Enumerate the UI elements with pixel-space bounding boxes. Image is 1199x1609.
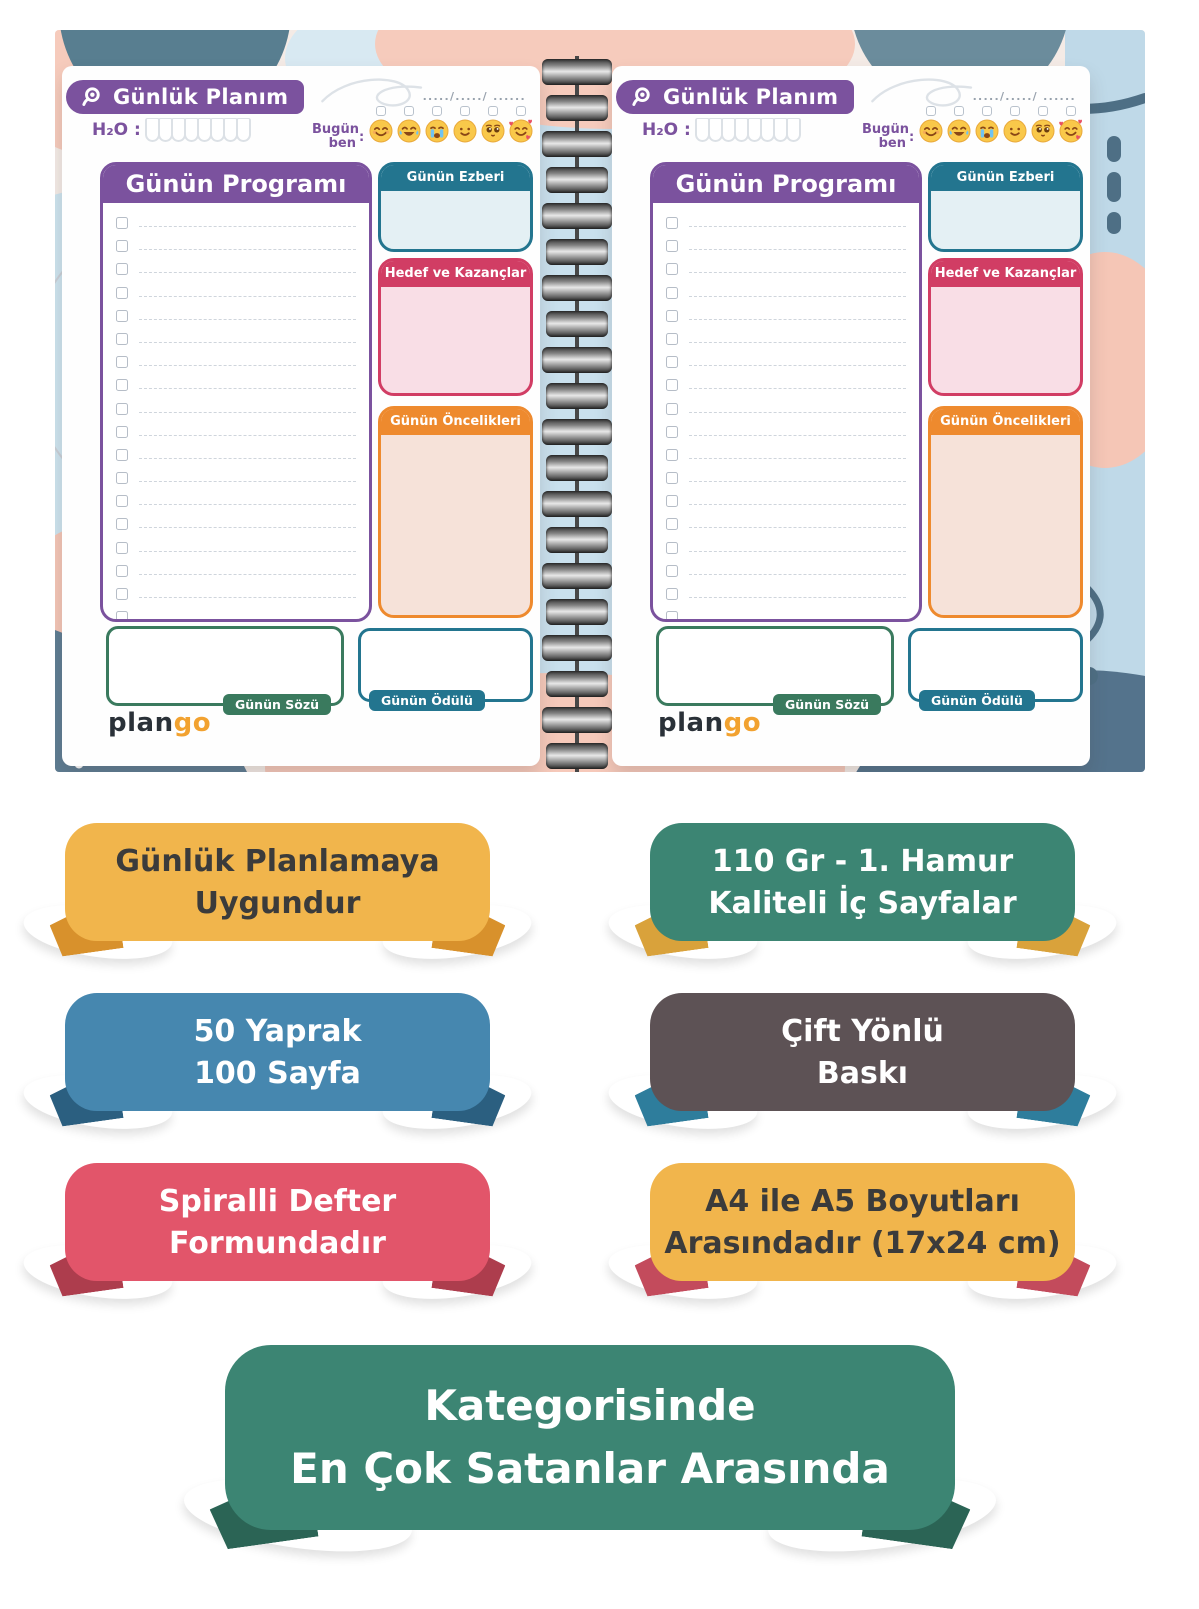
mood-checkbox: [1038, 106, 1048, 116]
quote-tag: Günün Sözü: [223, 694, 331, 715]
spiral-coil: [546, 95, 608, 121]
spiral-coil: [542, 59, 612, 85]
feature-badge-bestseller: KategorisindeEn Çok Satanlar Arasında: [225, 1345, 955, 1530]
checklist-row: [116, 468, 359, 491]
checklist-row: [666, 306, 909, 329]
checklist: [653, 203, 919, 622]
reward-tag: Günün Ödülü: [919, 690, 1035, 711]
feature-badge-daily-planning: Günlük PlanlamayaUygundur: [65, 823, 490, 941]
checklist-row: [666, 399, 909, 422]
page-title-banner: Günlük Planım: [66, 80, 304, 114]
mood-checkbox: [1010, 106, 1020, 116]
emoji-pleading-face-icon: [481, 119, 505, 143]
mood-tracker-label: Bugünben: [312, 123, 356, 150]
emoji-smiling-face-icon: [919, 119, 943, 143]
water-cup-icon: [786, 118, 801, 142]
spiral-coil: [546, 455, 608, 481]
checklist-row: [666, 213, 909, 236]
badge-text-line: Günlük Planlamaya: [115, 842, 439, 881]
reward-tag: Günün Ödülü: [369, 690, 485, 711]
mood-checkbox: [982, 106, 992, 116]
notebook-photo: Günlük Planım ...../...../ ...... H₂O : …: [55, 30, 1145, 772]
page-title: Günlük Planım: [113, 85, 288, 109]
water-tracker-label: H₂O :: [642, 120, 691, 140]
badge-text-line: 50 Yaprak: [194, 1012, 362, 1051]
checklist-row: [666, 491, 909, 514]
checklist-row: [116, 375, 359, 398]
badge-text-line: Kaliteli İç Sayfalar: [708, 884, 1016, 923]
spiral-coil: [542, 347, 612, 373]
mood-option: [974, 106, 1000, 143]
emoji-tears-of-joy-icon: [947, 119, 971, 143]
date-field: ...../...../ ......: [423, 90, 526, 103]
section-header: Günün Öncelikleri: [381, 409, 530, 435]
checklist-row: [666, 329, 909, 352]
emoji-slight-smile-icon: [1003, 119, 1027, 143]
checklist-row: [116, 352, 359, 375]
checklist-row: [116, 236, 359, 259]
mood-option: [946, 106, 972, 143]
checklist-row: [666, 584, 909, 607]
product-image: Günlük Planım ...../...../ ...... H₂O : …: [0, 0, 1199, 1609]
badge-text-line: Çift Yönlü: [781, 1012, 944, 1051]
plango-mark-icon: [80, 86, 102, 108]
water-tracker: H₂O :: [642, 118, 801, 142]
badge-text-line: Baskı: [817, 1054, 908, 1093]
spiral-coil: [546, 743, 608, 769]
mood-option: [918, 106, 944, 143]
section-memorization: Günün Ezberi: [928, 162, 1083, 252]
brand-logo: plango: [108, 708, 211, 738]
mood-option: [480, 106, 506, 143]
checklist-row: [666, 422, 909, 445]
checklist-row: [666, 375, 909, 398]
feature-badge-double-sided: Çift YönlüBaskı: [650, 993, 1075, 1111]
mood-checkbox: [1066, 106, 1076, 116]
section-memorization: Günün Ezberi: [378, 162, 533, 252]
section-header: Günün Ezberi: [381, 165, 530, 191]
checklist-row: [666, 607, 909, 622]
section-goals: Hedef ve Kazançlar: [928, 258, 1083, 396]
mood-checkbox: [432, 106, 442, 116]
emoji-crying-face-icon: [425, 119, 449, 143]
mood-tracker: Bugünben :: [862, 106, 1080, 152]
quote-box: Günün Sözü: [106, 626, 344, 706]
checklist-row: [116, 445, 359, 468]
mood-checkbox: [376, 106, 386, 116]
checklist-row: [116, 607, 359, 622]
checklist-row: [666, 259, 909, 282]
spiral-coil: [546, 383, 608, 409]
badge-text-line: 110 Gr - 1. Hamur: [712, 842, 1013, 881]
badge-text-line: A4 ile A5 Boyutları: [705, 1182, 1020, 1221]
mood-option: [1002, 106, 1028, 143]
mood-option: [508, 106, 534, 143]
checklist-row: [666, 538, 909, 561]
feature-badge-spiral-form: Spiralli DefterFormundadır: [65, 1163, 490, 1281]
mood-option: [1030, 106, 1056, 143]
section-header: Hedef ve Kazançlar: [931, 261, 1080, 287]
planner-page-right: Günlük Planım ...../...../ ...... H₂O : …: [612, 66, 1090, 766]
spiral-coil: [546, 527, 608, 553]
mood-tracker: Bugünben :: [312, 106, 530, 152]
mood-tracker-label: Bugünben: [862, 123, 906, 150]
emoji-pleading-face-icon: [1031, 119, 1055, 143]
checklist-row: [116, 491, 359, 514]
badge-text-line: Formundadır: [169, 1224, 386, 1263]
emoji-tears-of-joy-icon: [397, 119, 421, 143]
mood-option: [368, 106, 394, 143]
checklist-row: [666, 283, 909, 306]
checklist-row: [666, 514, 909, 537]
spiral-coil: [542, 203, 612, 229]
spiral-coil: [546, 167, 608, 193]
spiral-coil: [546, 671, 608, 697]
mood-checkbox: [404, 106, 414, 116]
badge-text-line: 100 Sayfa: [194, 1054, 361, 1093]
brand-logo: plango: [658, 708, 761, 738]
water-tracker-label: H₂O :: [92, 120, 141, 140]
checklist-row: [116, 259, 359, 282]
mood-checkbox: [926, 106, 936, 116]
quote-box: Günün Sözü: [656, 626, 894, 706]
emoji-hearts-face-icon: [1059, 119, 1083, 143]
spiral-coil: [542, 491, 612, 517]
badge-text-line: Kategorisinde: [424, 1379, 755, 1434]
planner-page-left: Günlük Planım ...../...../ ...... H₂O : …: [62, 66, 540, 766]
reward-box: Günün Ödülü: [908, 628, 1083, 702]
mood-checkbox: [488, 106, 498, 116]
checklist-row: [666, 236, 909, 259]
feature-badge-page-count: 50 Yaprak100 Sayfa: [65, 993, 490, 1111]
mood-option: [424, 106, 450, 143]
mood-checkbox: [954, 106, 964, 116]
reward-box: Günün Ödülü: [358, 628, 533, 702]
page-title-banner: Günlük Planım: [616, 80, 854, 114]
section-priorities: Günün Öncelikleri: [928, 406, 1083, 618]
section-header: Günün Programı: [653, 165, 919, 203]
checklist-row: [116, 283, 359, 306]
section-program: Günün Programı: [650, 162, 922, 622]
badge-text-line: Spiralli Defter: [159, 1182, 396, 1221]
mood-checkbox: [460, 106, 470, 116]
feature-badge-paper-quality: 110 Gr - 1. HamurKaliteli İç Sayfalar: [650, 823, 1075, 941]
checklist-row: [666, 352, 909, 375]
quote-tag: Günün Sözü: [773, 694, 881, 715]
checklist-row: [116, 329, 359, 352]
emoji-crying-face-icon: [975, 119, 999, 143]
spiral-coil: [542, 635, 612, 661]
badge-text-line: Uygundur: [195, 884, 361, 923]
badge-text-line: En Çok Satanlar Arasında: [290, 1442, 890, 1497]
mood-option: [396, 106, 422, 143]
checklist-row: [116, 584, 359, 607]
spiral-coil: [546, 311, 608, 337]
spiral-coil: [542, 707, 612, 733]
checklist-row: [116, 399, 359, 422]
date-field: ...../...../ ......: [973, 90, 1076, 103]
checklist-row: [116, 561, 359, 584]
spiral-coil: [542, 563, 612, 589]
plango-mark-icon: [630, 86, 652, 108]
emoji-slight-smile-icon: [453, 119, 477, 143]
checklist: [103, 203, 369, 622]
page-title: Günlük Planım: [663, 85, 838, 109]
spiral-binding: [542, 56, 612, 772]
checklist-row: [666, 468, 909, 491]
spiral-coil: [546, 239, 608, 265]
badge-text-line: Arasındadır (17x24 cm): [664, 1224, 1060, 1263]
section-goals: Hedef ve Kazançlar: [378, 258, 533, 396]
checklist-row: [116, 306, 359, 329]
spiral-coil: [542, 131, 612, 157]
checklist-row: [116, 538, 359, 561]
mood-option: [1058, 106, 1084, 143]
emoji-hearts-face-icon: [509, 119, 533, 143]
mood-option: [452, 106, 478, 143]
spiral-coil: [542, 275, 612, 301]
section-header: Hedef ve Kazançlar: [381, 261, 530, 287]
section-header: Günün Programı: [103, 165, 369, 203]
mood-checkbox: [516, 106, 526, 116]
feature-badge-size: A4 ile A5 BoyutlarıArasındadır (17x24 cm…: [650, 1163, 1075, 1281]
checklist-row: [116, 422, 359, 445]
section-header: Günün Ezberi: [931, 165, 1080, 191]
checklist-row: [116, 213, 359, 236]
spiral-coil: [546, 599, 608, 625]
checklist-row: [116, 514, 359, 537]
section-priorities: Günün Öncelikleri: [378, 406, 533, 618]
water-cup-icon: [236, 118, 251, 142]
checklist-row: [666, 561, 909, 584]
spiral-coil: [542, 419, 612, 445]
section-header: Günün Öncelikleri: [931, 409, 1080, 435]
checklist-row: [666, 445, 909, 468]
water-tracker: H₂O :: [92, 118, 251, 142]
section-program: Günün Programı: [100, 162, 372, 622]
emoji-smiling-face-icon: [369, 119, 393, 143]
